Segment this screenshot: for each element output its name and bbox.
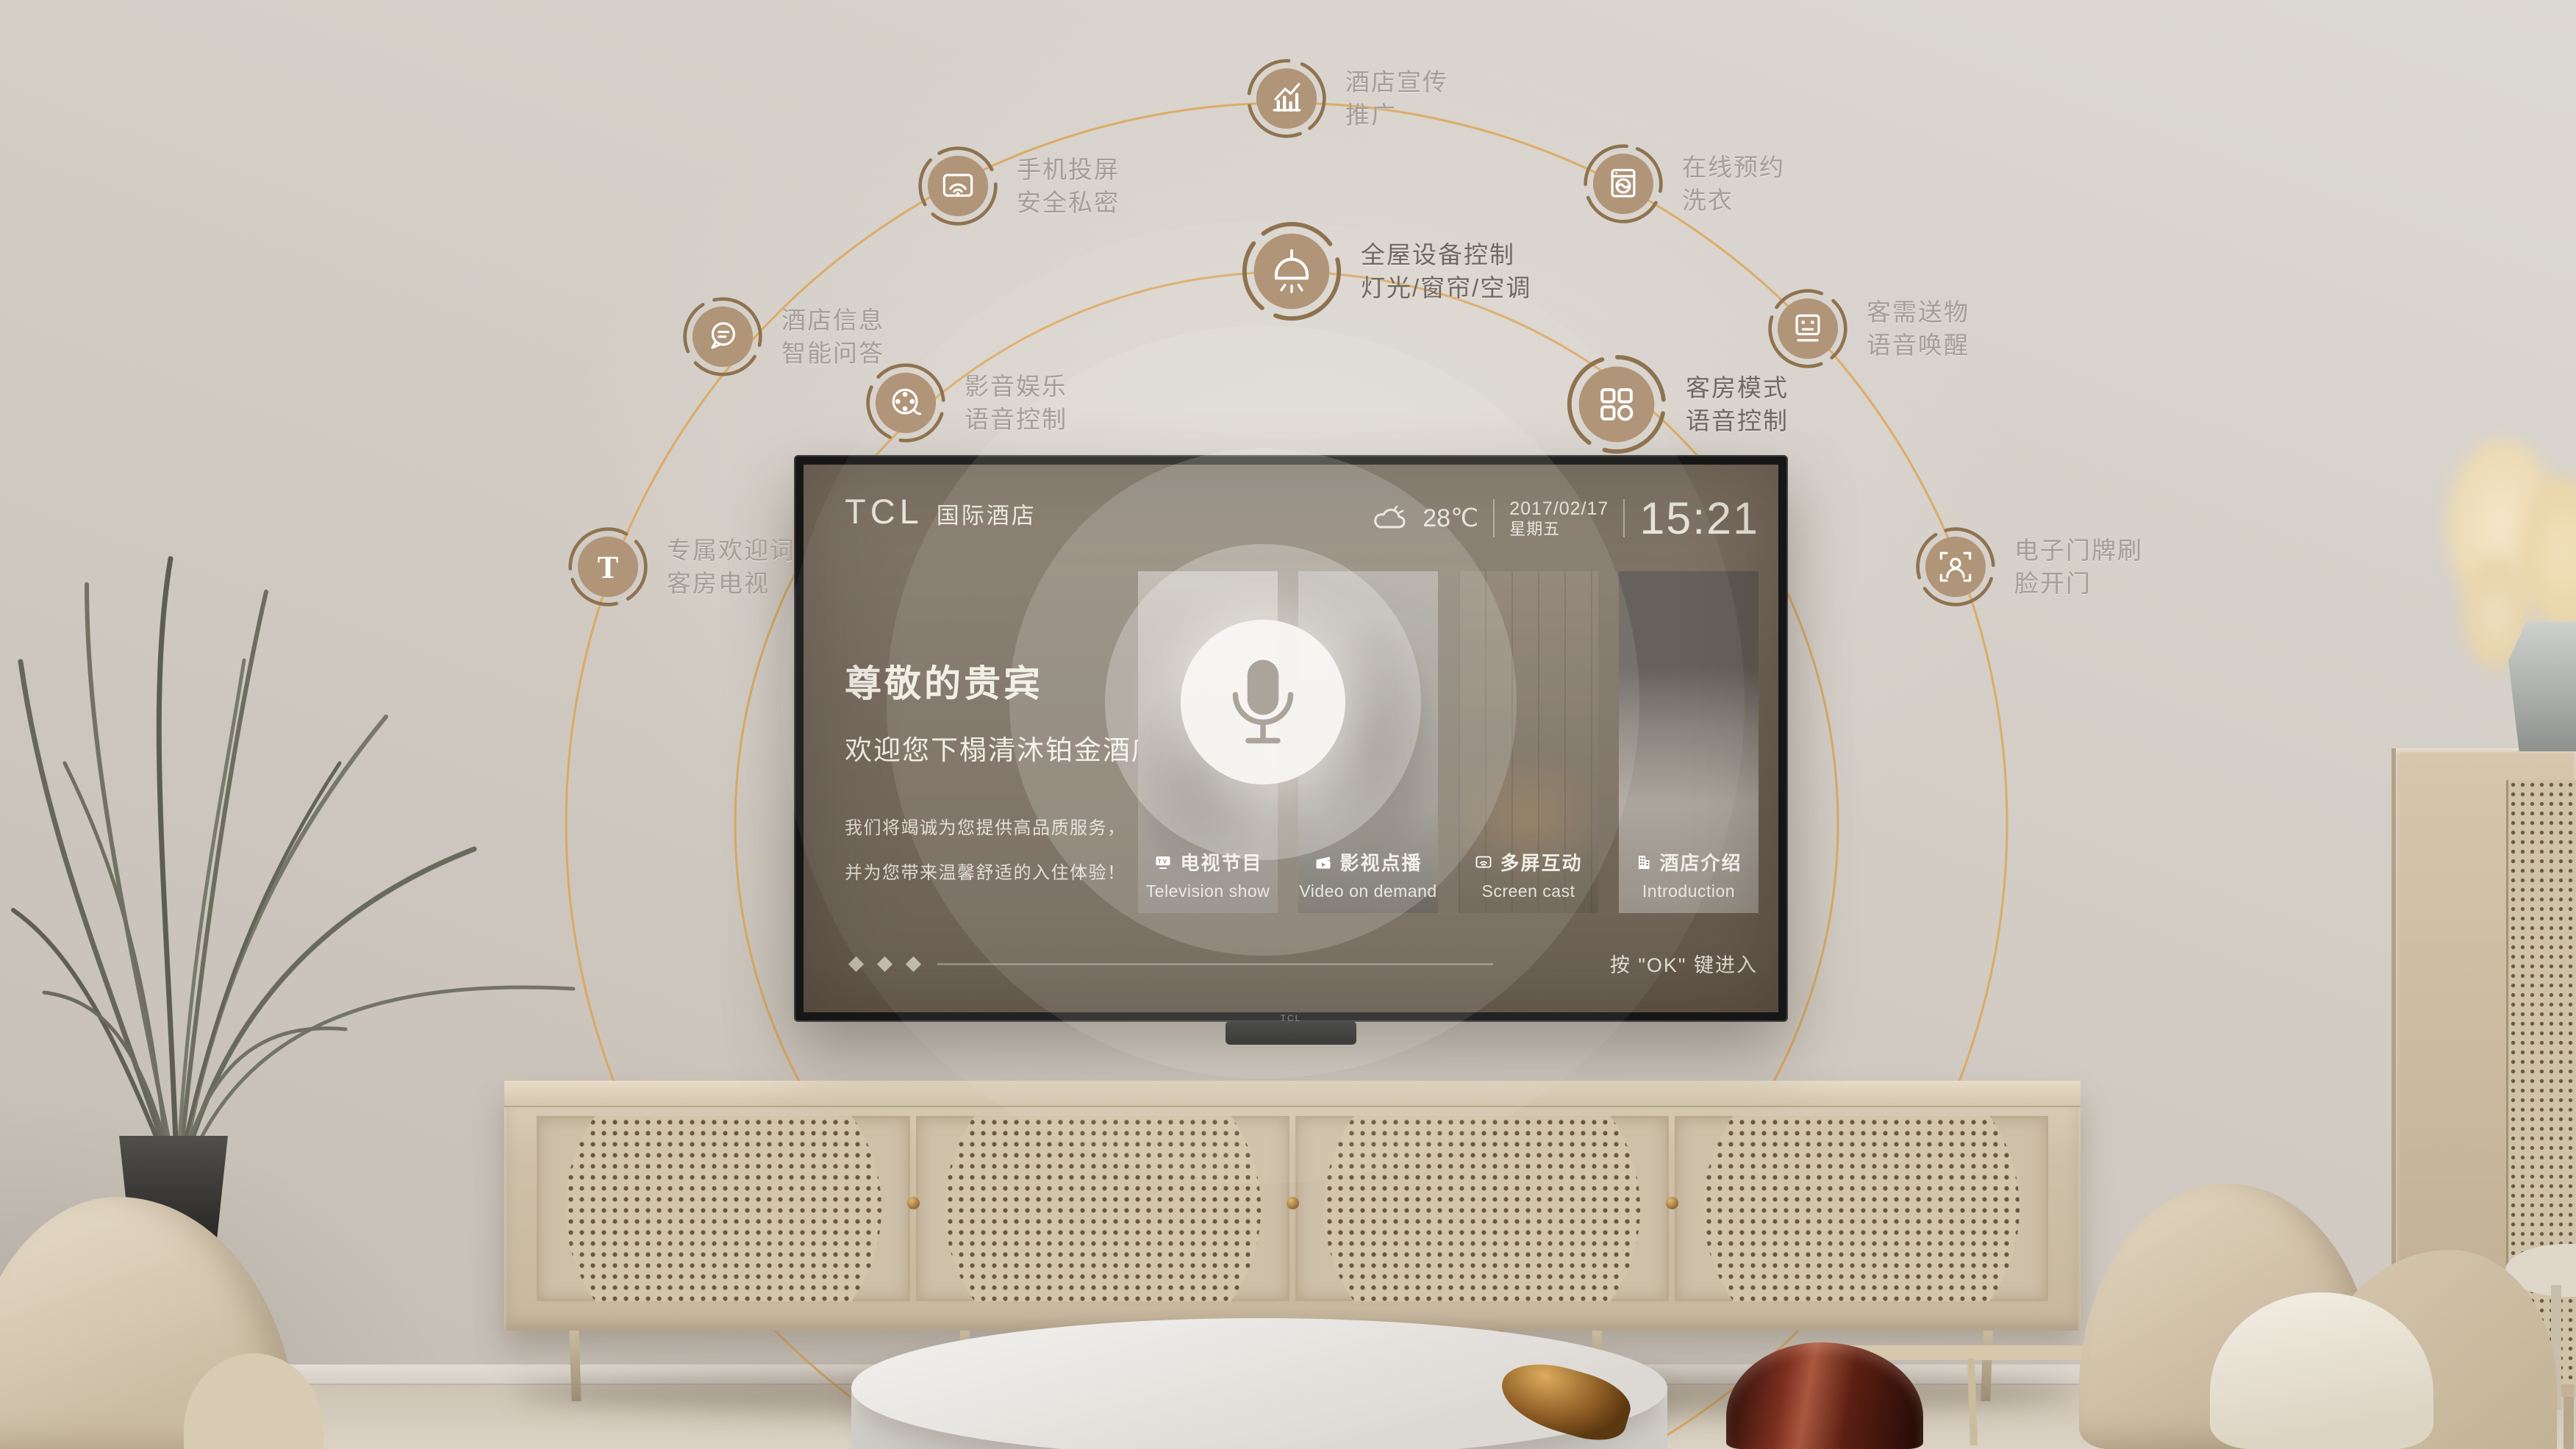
feature-room-mode[interactable]: 客房模式 语音控制	[1565, 353, 1789, 456]
face-scan-icon	[1914, 526, 1997, 608]
card-label-cn: 电视节目	[1180, 848, 1262, 876]
feature-online-laundry[interactable]: 在线预约 洗衣	[1582, 143, 1785, 225]
voice-assistant-button[interactable]	[1181, 620, 1345, 784]
feature-label-line1: 影音娱乐	[965, 370, 1067, 403]
card-label-en: Video on demand	[1298, 881, 1438, 901]
ceramic-vase	[2508, 622, 2576, 751]
film-reel-icon	[865, 362, 947, 444]
feature-labels: 在线预约 洗衣	[1682, 151, 1785, 217]
feature-label-line2: 灯光/窗帘/空调	[1361, 271, 1531, 304]
cabinet-leg	[2564, 1397, 2574, 1449]
pagination-diamond[interactable]	[848, 956, 864, 972]
sideboard-door	[537, 1116, 910, 1301]
card-caption: 酒店介绍 Introduction	[1619, 848, 1759, 901]
pendant-lamp-icon	[1240, 220, 1343, 323]
tv-stand	[1226, 1021, 1356, 1045]
footer-divider-line	[937, 963, 1493, 965]
feature-labels: 手机投屏 安全私密	[1017, 153, 1120, 219]
chat-bubble-icon	[681, 296, 764, 378]
feature-labels: 客房模式 语音控制	[1686, 371, 1789, 437]
welcome-subtitle: 欢迎您下榻清沐铂金酒店	[845, 728, 1160, 768]
bezel-logo: TCL	[1281, 1013, 1302, 1023]
feature-labels: 客需送物 语音唤醒	[1867, 296, 1969, 362]
card-screen-cast[interactable]: 多屏互动 Screen cast	[1459, 571, 1598, 913]
feature-labels: 酒店信息 智能问答	[781, 304, 884, 370]
feature-labels: 电子门牌刷 脸开门	[2014, 534, 2143, 600]
cane-webbing-panel	[1703, 1116, 2019, 1301]
pagination-diamond[interactable]	[906, 956, 921, 972]
feature-label-line1: 酒店宣传	[1345, 65, 1448, 99]
hotel-building-icon	[1635, 854, 1653, 871]
feature-label-line2: 推广	[1345, 99, 1448, 132]
welcome-block: 尊敬的贵宾 欢迎您下榻清沐铂金酒店 我们将竭诚为您提供高品质服务， 并为您带来温…	[845, 654, 1160, 884]
welcome-title: 尊敬的贵宾	[845, 654, 1160, 707]
washing-machine-icon	[1582, 143, 1664, 225]
door-knob	[907, 1197, 920, 1209]
divider	[1623, 499, 1625, 537]
hotel-brand-name: 国际酒店	[937, 497, 1037, 530]
app-grid-icon	[1565, 353, 1668, 456]
sideboard-door	[916, 1116, 1289, 1301]
feature-label-line2: 语音唤醒	[1867, 329, 1969, 362]
card-caption: TV 电视节目 Television show	[1138, 848, 1278, 901]
feature-label-line2: 脸开门	[2014, 567, 2143, 600]
feature-label-line1: 客房模式	[1686, 371, 1789, 404]
cane-webbing-panel	[1324, 1116, 1640, 1301]
svg-text:T: T	[598, 551, 619, 585]
letter-t-icon: T	[567, 526, 649, 608]
bar-chart-icon	[1245, 57, 1328, 140]
card-label-en: Screen cast	[1459, 881, 1598, 901]
cane-webbing-panel	[565, 1116, 881, 1301]
screen-cast-icon	[917, 145, 999, 227]
feature-label-line2: 客房电视	[667, 567, 795, 600]
feature-label-line1: 客需送物	[1867, 296, 1969, 329]
card-hotel-introduction[interactable]: 酒店介绍 Introduction	[1619, 571, 1759, 913]
feature-device-control[interactable]: 全屋设备控制 灯光/窗帘/空调	[1240, 220, 1531, 323]
feature-av-entertainment[interactable]: 影音娱乐 语音控制	[865, 362, 1067, 444]
feature-phone-casting[interactable]: 手机投屏 安全私密	[917, 145, 1120, 227]
tv-brand: TCL 国际酒店	[845, 491, 1037, 532]
pagination-diamond[interactable]	[877, 956, 892, 972]
tv-icon: TV	[1153, 854, 1173, 871]
feature-label-line1: 酒店信息	[781, 304, 884, 337]
clapperboard-icon	[1314, 854, 1333, 871]
feature-labels: 影音娱乐 语音控制	[965, 370, 1067, 436]
feature-labels: 专属欢迎词 客房电视	[667, 534, 795, 600]
feature-label-line1: 手机投屏	[1017, 153, 1120, 186]
card-label-en: Introduction	[1619, 881, 1759, 901]
cane-webbing-panel	[945, 1116, 1261, 1301]
feature-labels: 全屋设备控制 灯光/窗帘/空调	[1361, 238, 1531, 304]
feature-face-unlock-door[interactable]: 电子门牌刷 脸开门	[1914, 526, 2143, 608]
feature-welcome-message[interactable]: T 专属欢迎词 客房电视	[567, 526, 795, 608]
svg-text:TV: TV	[1158, 858, 1168, 865]
feature-label-line1: 专属欢迎词	[667, 534, 795, 567]
temperature: 28℃	[1423, 504, 1478, 533]
cloud-icon	[1373, 505, 1408, 532]
sideboard-door	[1295, 1116, 1669, 1301]
feature-label-line2: 洗衣	[1682, 184, 1785, 217]
feature-label-line2: 语音控制	[1686, 404, 1789, 437]
card-caption: 多屏互动 Screen cast	[1459, 848, 1598, 901]
date-block: 2017/02/17 星期五	[1509, 498, 1609, 538]
welcome-line: 并为您带来温馨舒适的入住体验！	[845, 858, 1160, 884]
divider	[1493, 499, 1495, 537]
date: 2017/02/17	[1509, 498, 1609, 520]
pagination-dots	[851, 959, 919, 970]
card-label-cn: 影视点播	[1339, 848, 1422, 876]
card-label-en: Television show	[1138, 881, 1278, 901]
door-knob	[1666, 1197, 1678, 1209]
card-label-cn: 多屏互动	[1500, 848, 1582, 876]
card-caption: 影视点播 Video on demand	[1298, 848, 1438, 901]
feature-label-line1: 全屋设备控制	[1361, 238, 1531, 271]
sideboard-door	[1675, 1116, 2048, 1301]
microphone-icon	[1208, 647, 1318, 757]
feature-hotel-promotion[interactable]: 酒店宣传 推广	[1245, 57, 1448, 140]
weekday: 星期五	[1509, 520, 1609, 538]
ok-key-hint: 按 "OK" 键进入	[1610, 949, 1758, 978]
feature-label-line2: 语音控制	[965, 403, 1067, 436]
card-label-cn: 酒店介绍	[1659, 848, 1742, 876]
feature-label-line2: 安全私密	[1017, 186, 1120, 219]
welcome-line: 我们将竭诚为您提供高品质服务，	[845, 813, 1160, 839]
multiscreen-icon	[1474, 854, 1493, 871]
feature-label-line1: 在线预约	[1682, 151, 1785, 184]
clock: 15:21	[1639, 493, 1759, 544]
tcl-logo: TCL	[845, 491, 923, 532]
sideboard-cabinet	[504, 1081, 2081, 1331]
feature-labels: 酒店宣传 推广	[1345, 65, 1448, 132]
feature-hotel-info[interactable]: 酒店信息 智能问答	[681, 296, 884, 378]
feature-guest-delivery[interactable]: 客需送物 语音唤醒	[1767, 287, 1969, 370]
status-bar: 28℃ 2017/02/17 星期五 15:21	[1373, 493, 1759, 544]
door-knob	[1287, 1197, 1299, 1209]
feature-label-line1: 电子门牌刷	[2014, 534, 2143, 567]
